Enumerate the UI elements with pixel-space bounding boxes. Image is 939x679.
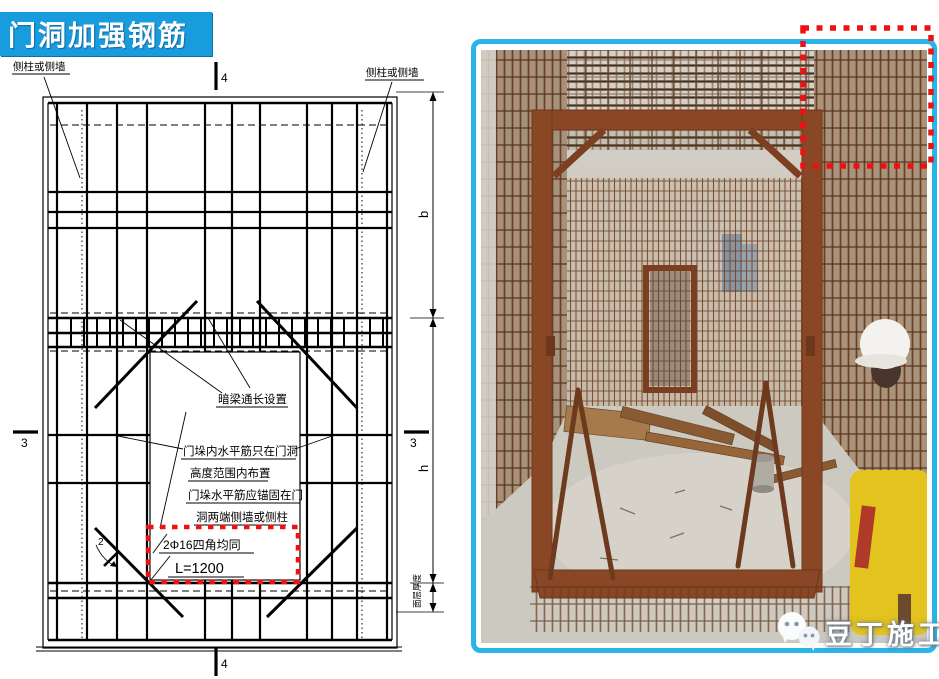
watermark-text: 豆丁施工 <box>825 613 939 652</box>
inner-door-frame <box>646 268 694 390</box>
section-top-label: 4 <box>221 71 228 85</box>
highlight-box <box>795 18 939 173</box>
annotation-notes: 暗梁通长设置 门垛内水平筋只在门洞 高度范围内布置 门垛水平筋应锚固在门 洞两端… <box>181 392 303 525</box>
dim-h-label: h <box>416 465 431 472</box>
note-anchor-2: 洞两端侧墙或侧柱 <box>196 510 288 524</box>
callout-length: L=1200 <box>175 561 224 577</box>
section-bottom-label: 4 <box>221 657 228 671</box>
lintel-band <box>48 318 392 347</box>
section-right-label: 3 <box>410 436 417 450</box>
floor-band <box>48 103 392 640</box>
title-banner: 门洞加强钢筋 <box>0 12 212 56</box>
note-anchor-1: 门垛水平筋应锚固在门 <box>188 488 303 502</box>
page-title: 门洞加强钢筋 <box>0 14 188 54</box>
side-label-right: 侧柱或侧墙 <box>366 66 419 79</box>
note-beam: 暗梁通长设置 <box>218 392 287 406</box>
side-label-left: 侧柱或侧墙 <box>13 60 66 73</box>
vertical-rebar <box>57 103 387 640</box>
rebar-elevation-drawing: 2 暗梁通长设置 门垛内水平筋只在门洞 高度范围内布置 门垛水平筋应锚固在门 洞… <box>0 0 470 679</box>
callout-bars: 2Φ16四角均同 <box>163 538 241 552</box>
dim-b-label: b <box>416 211 431 218</box>
page: 2 暗梁通长设置 门垛内水平筋只在门洞 高度范围内布置 门垛水平筋应锚固在门 洞… <box>0 0 939 679</box>
section-left-label: 3 <box>21 436 28 450</box>
side-labels: 侧柱或侧墙 侧柱或侧墙 <box>12 60 424 80</box>
hidden-beam-band <box>48 192 392 228</box>
note-pier-2: 高度范围内布置 <box>190 466 271 480</box>
note-pier-1: 门垛内水平筋只在门洞 <box>183 444 298 458</box>
callout-box: 2Φ16四角均同 L=1200 <box>148 527 298 582</box>
chat-logo-icon <box>775 610 825 654</box>
dimension-line: b h 面层厚度 <box>396 92 444 612</box>
section-diagonal-label: 2 <box>98 537 104 548</box>
watermark: 豆丁施工 <box>775 610 939 654</box>
dim-floor-label: 面层厚度 <box>412 573 422 608</box>
